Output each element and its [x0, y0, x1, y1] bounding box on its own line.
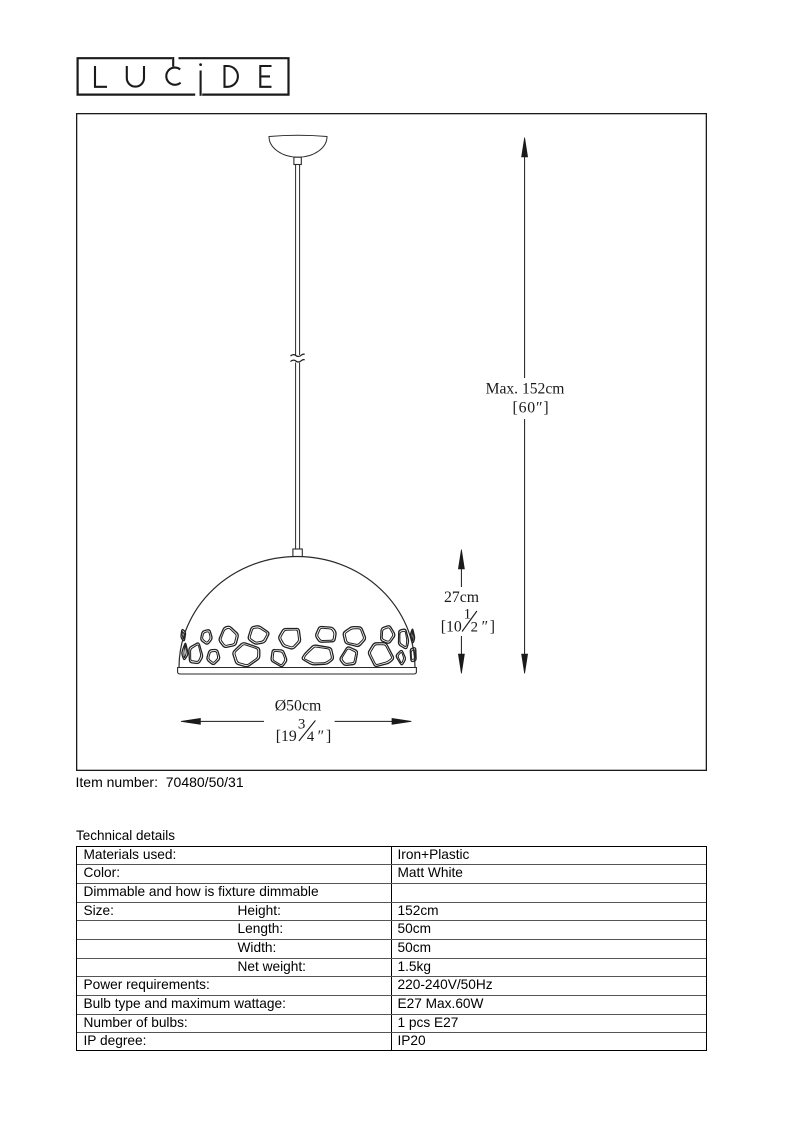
- svg-text:]: ]: [326, 728, 331, 745]
- svg-text:″: ″: [482, 619, 489, 636]
- svg-text:[10: [10: [441, 619, 462, 636]
- svg-text:Ø50cm: Ø50cm: [275, 698, 322, 715]
- svg-text:27cm: 27cm: [444, 589, 480, 606]
- svg-text:[19: [19: [276, 728, 297, 745]
- svg-text:4: 4: [307, 729, 315, 745]
- svg-text:2: 2: [471, 620, 478, 636]
- svg-text:3: 3: [298, 717, 306, 733]
- svg-text:″: ″: [318, 728, 325, 745]
- svg-text:Max. 152cm: Max. 152cm: [486, 381, 565, 398]
- svg-text:]: ]: [490, 619, 495, 636]
- svg-text:[60″]: [60″]: [513, 400, 550, 417]
